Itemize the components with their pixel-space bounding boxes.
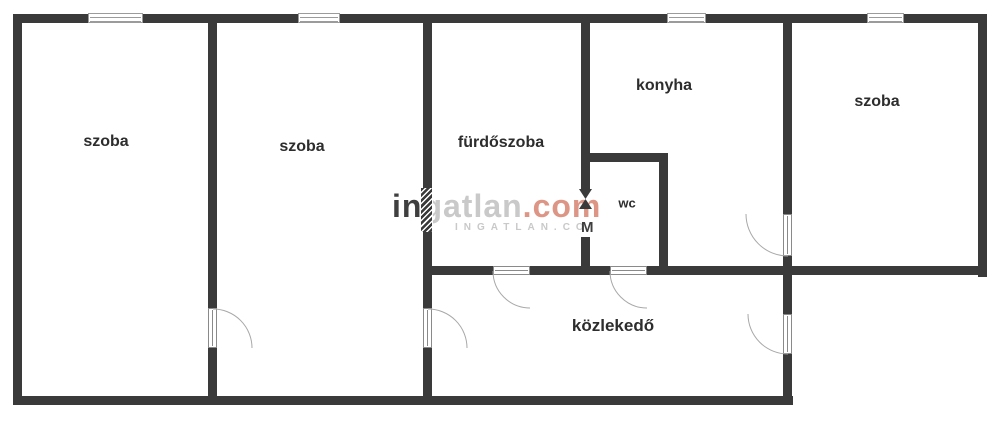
room-label-szoba-2: szoba — [279, 138, 324, 156]
door-arc-szoba2-hall — [428, 309, 467, 348]
door-arc-entrance — [748, 314, 788, 354]
room-label-szoba-3: szoba — [854, 93, 899, 111]
door-arc-kitchen-szoba3 — [746, 214, 788, 256]
bathroom-wc-opening-marker-top — [579, 189, 592, 199]
room-label-wc: wc — [618, 196, 635, 211]
room-label-konyha: konyha — [636, 77, 692, 95]
door-arc-hall-bathroom — [493, 271, 530, 308]
door-arc-hall-wc — [610, 271, 647, 308]
room-label-kozlekedo: közlekedő — [572, 316, 654, 336]
door-arcs-overlay — [0, 0, 1000, 422]
room-label-szoba-1: szoba — [83, 133, 128, 151]
floor-plan-image: ingatlan.com INGATLAN.CO M — [0, 0, 1000, 422]
room-label-furdoszoba: fürdőszoba — [458, 134, 544, 152]
bathroom-wc-opening-marker-bottom — [579, 199, 592, 209]
door-arc-szoba1-szoba2 — [213, 309, 252, 348]
